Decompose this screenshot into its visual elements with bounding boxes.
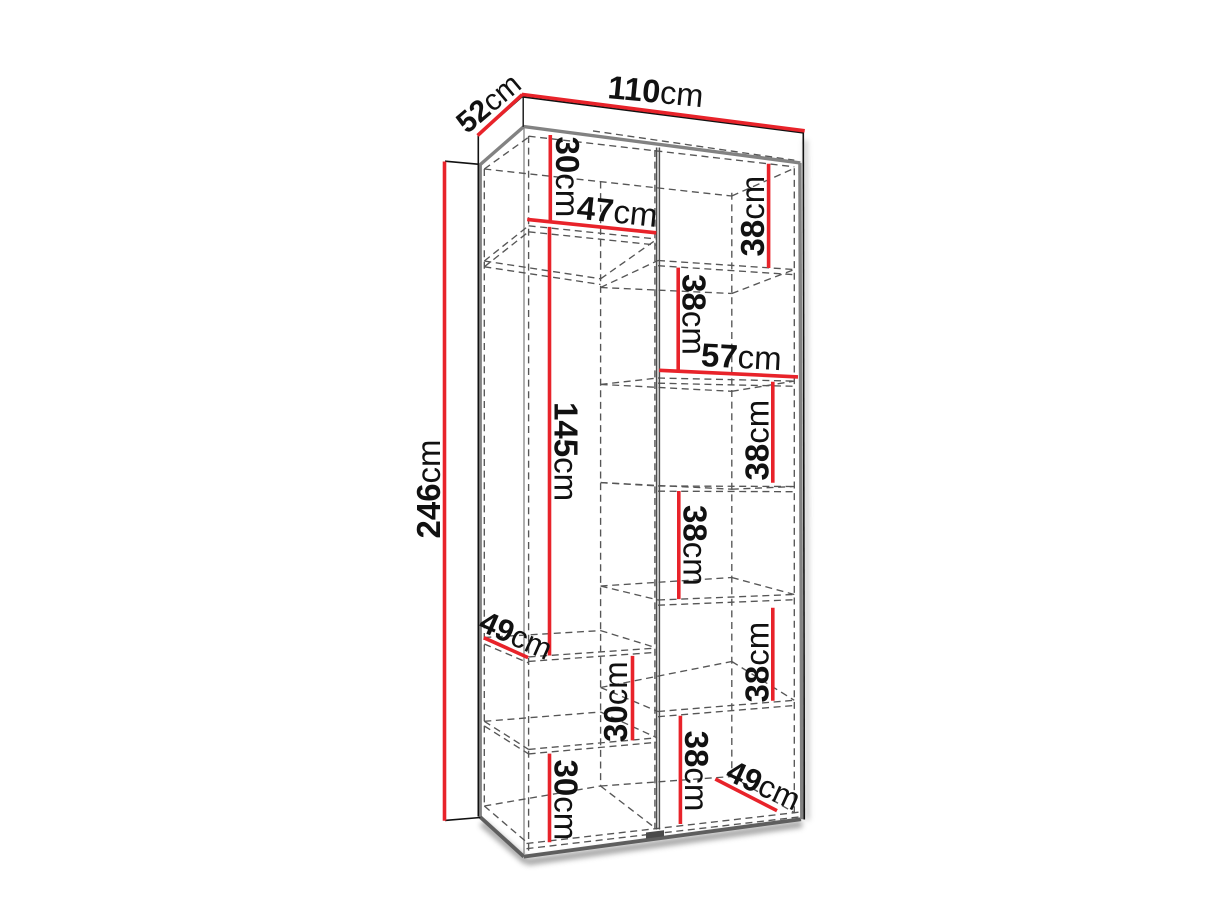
svg-text:38cm: 38cm xyxy=(678,731,715,812)
svg-text:38cm: 38cm xyxy=(738,400,775,481)
svg-text:246cm: 246cm xyxy=(410,439,447,538)
svg-text:57cm: 57cm xyxy=(700,336,783,377)
svg-text:38cm: 38cm xyxy=(738,622,775,703)
svg-text:30cm: 30cm xyxy=(548,760,585,841)
svg-text:38cm: 38cm xyxy=(676,505,713,586)
svg-text:145cm: 145cm xyxy=(548,402,585,501)
svg-text:38cm: 38cm xyxy=(734,176,771,257)
svg-text:30cm: 30cm xyxy=(597,661,634,742)
